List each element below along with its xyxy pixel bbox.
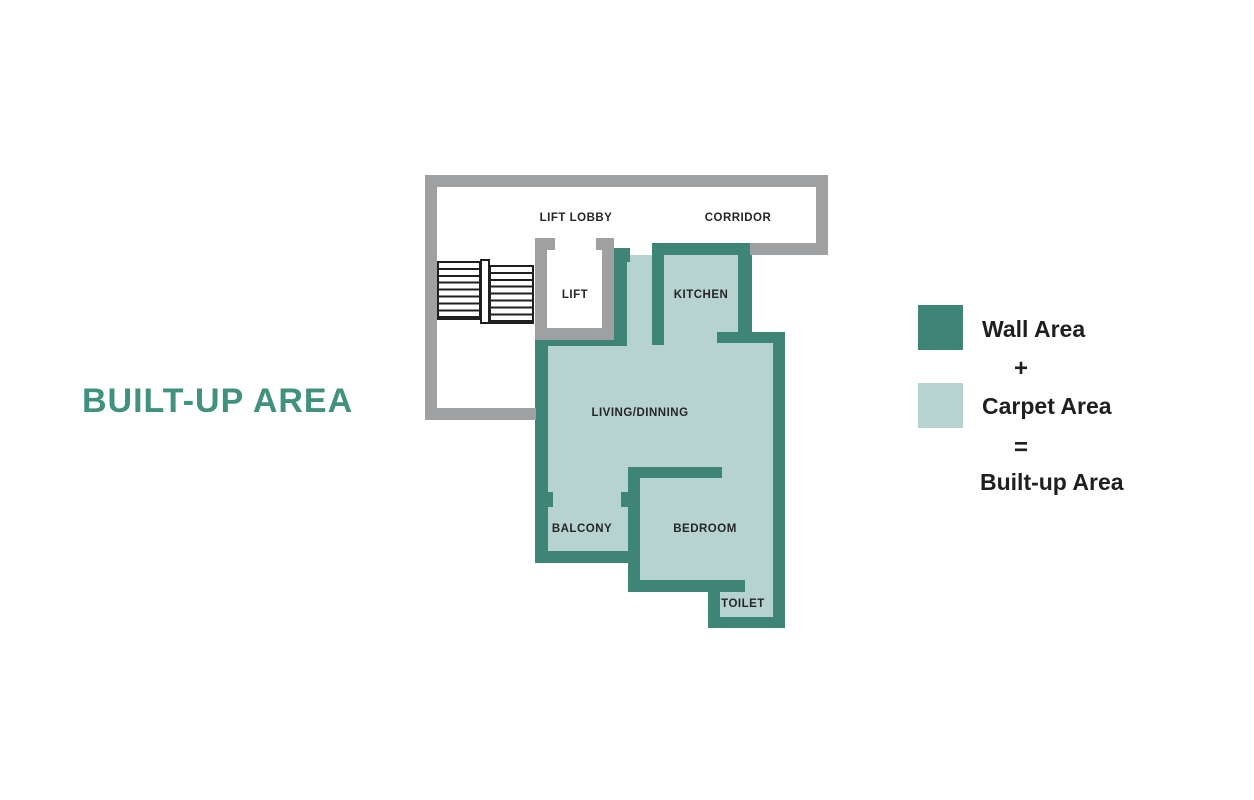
label-toilet: TOILET bbox=[721, 598, 765, 610]
label-living-dining: LIVING/DINNING bbox=[591, 407, 688, 419]
wall-entry-stub bbox=[614, 248, 630, 262]
wall-bedroom-left bbox=[628, 467, 640, 592]
label-bedroom: BEDROOM bbox=[673, 523, 737, 535]
lift-wall-left bbox=[535, 238, 547, 340]
stair-flight-left bbox=[437, 261, 481, 320]
lift-wall-right bbox=[602, 238, 614, 340]
legend-wall-swatch bbox=[918, 305, 963, 350]
page-title: BUILT-UP AREA bbox=[82, 382, 353, 421]
wall-kitchen-bottom bbox=[717, 332, 785, 343]
gray-wall-corridor-bottom bbox=[750, 243, 828, 255]
wall-entry-strip bbox=[614, 248, 627, 346]
legend-carpet-label: Carpet Area bbox=[982, 393, 1112, 420]
wall-balcony-door-stub-left bbox=[540, 492, 553, 507]
gray-wall-bottom-left bbox=[425, 408, 536, 420]
wall-kitchen-left bbox=[652, 243, 664, 345]
label-kitchen: KITCHEN bbox=[674, 289, 729, 301]
wall-balcony-bottom bbox=[535, 551, 640, 563]
floor-plan-canvas: BUILT-UP AREA LIFT LOBBY CORRIDOR LIFT K… bbox=[0, 0, 1254, 800]
legend-wall-label: Wall Area bbox=[982, 316, 1085, 343]
wall-unit-right bbox=[773, 332, 785, 628]
wall-kitchen-right bbox=[738, 243, 752, 332]
wall-kitchen-top bbox=[652, 243, 752, 255]
gray-wall-top bbox=[425, 175, 828, 187]
wall-bedroom-bottom bbox=[628, 580, 745, 592]
stair-flight-right bbox=[489, 265, 534, 324]
wall-bedroom-top bbox=[628, 467, 722, 478]
label-lift-lobby: LIFT LOBBY bbox=[540, 212, 613, 224]
wall-living-left bbox=[535, 340, 548, 563]
legend-equals-sign: = bbox=[1014, 434, 1028, 462]
label-balcony: BALCONY bbox=[552, 523, 612, 535]
carpet-entry-passage bbox=[627, 255, 652, 346]
lift-wall-bottom bbox=[535, 328, 614, 340]
legend-carpet-swatch bbox=[918, 383, 963, 428]
legend-result-label: Built-up Area bbox=[980, 469, 1124, 496]
label-corridor: CORRIDOR bbox=[705, 212, 772, 224]
lift-wall-top-left-stub bbox=[535, 238, 555, 250]
legend-plus-sign: + bbox=[1014, 355, 1028, 383]
wall-balcony-door-stub-right bbox=[621, 492, 628, 507]
gray-wall-left bbox=[425, 175, 437, 420]
wall-toilet-left bbox=[708, 590, 720, 617]
label-lift: LIFT bbox=[562, 289, 588, 301]
carpet-balcony bbox=[548, 492, 628, 551]
